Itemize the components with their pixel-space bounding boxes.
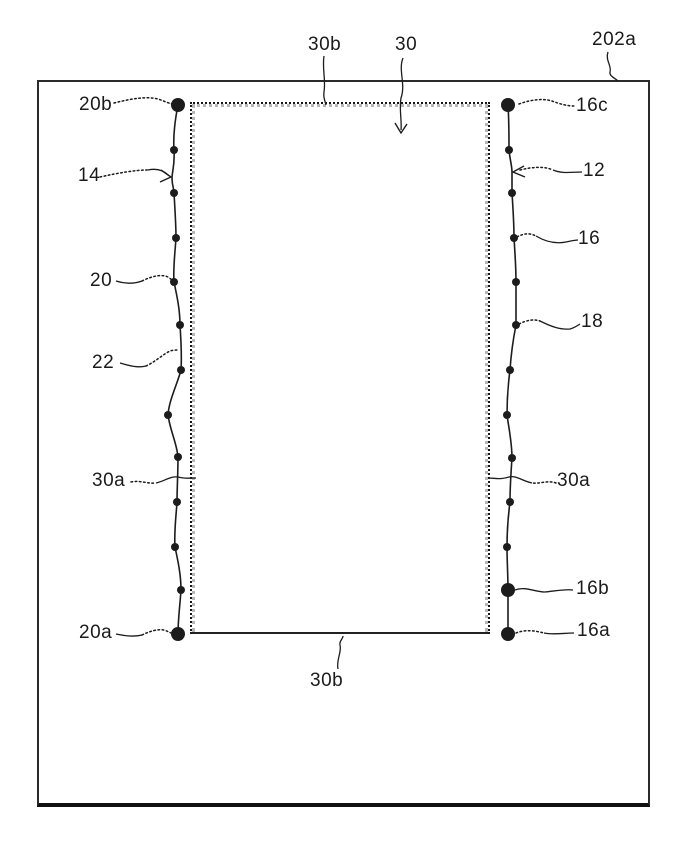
leader-30b-top bbox=[323, 56, 326, 105]
electrode-dot bbox=[177, 586, 185, 594]
leader-22-dotted bbox=[146, 350, 179, 366]
label-16a: 16a bbox=[577, 621, 610, 641]
electrode-dot bbox=[164, 411, 172, 419]
electrode-dot bbox=[172, 234, 180, 242]
electrode-dot bbox=[501, 98, 515, 112]
label-14: 14 bbox=[78, 166, 100, 186]
label-22: 22 bbox=[92, 353, 114, 373]
leader-12-dotted bbox=[520, 167, 553, 170]
label-12: 12 bbox=[583, 161, 605, 181]
electrode-dot bbox=[510, 234, 518, 242]
leader-16a-solid bbox=[544, 633, 574, 634]
leader-30a-left-dotted bbox=[131, 481, 156, 483]
electrode-dot bbox=[170, 146, 178, 154]
leader-12-solid bbox=[553, 170, 582, 173]
leader-16b bbox=[515, 589, 573, 592]
electrode-dots bbox=[164, 98, 520, 641]
leader-16-solid bbox=[536, 236, 578, 243]
leader-20-dotted bbox=[142, 276, 175, 282]
label-18: 18 bbox=[581, 312, 603, 332]
electrode-dot bbox=[173, 498, 181, 506]
electrode-dot bbox=[174, 453, 182, 461]
leader-16-dotted bbox=[517, 234, 536, 237]
electrode-dot bbox=[505, 146, 513, 154]
leader-20a-solid bbox=[116, 634, 142, 636]
leader-20b bbox=[114, 98, 172, 104]
electrode-dot bbox=[171, 98, 185, 112]
electrode-dot bbox=[512, 278, 520, 286]
leader-16a-dotted bbox=[516, 631, 544, 633]
leader-30 bbox=[400, 58, 403, 130]
label-20a: 20a bbox=[79, 623, 112, 643]
leader-20-solid bbox=[116, 281, 142, 283]
leader-20a-dotted bbox=[142, 630, 171, 635]
label-30b-bottom: 30b bbox=[310, 671, 343, 691]
leader-16c bbox=[519, 100, 574, 106]
label-16b: 16b bbox=[576, 579, 609, 599]
electrode-dot bbox=[503, 411, 511, 419]
label-30a-left: 30a bbox=[92, 471, 125, 491]
patent-figure: 20b 14 20 22 30a 20a 16c 12 16 18 30a 16… bbox=[0, 0, 688, 858]
electrode-dot bbox=[501, 583, 515, 597]
electrode-dot bbox=[508, 189, 516, 197]
label-30b-top: 30b bbox=[308, 35, 341, 55]
leader-202a bbox=[607, 52, 618, 81]
label-20: 20 bbox=[90, 271, 112, 291]
label-20b: 20b bbox=[79, 95, 112, 115]
electrode-dot bbox=[171, 627, 185, 641]
electrode-dot bbox=[506, 366, 514, 374]
label-16: 16 bbox=[578, 229, 600, 249]
electrode-dot bbox=[177, 366, 185, 374]
label-202a: 202a bbox=[592, 30, 636, 50]
leader-18-solid bbox=[540, 321, 580, 329]
arrowhead-12 bbox=[513, 166, 525, 177]
leader-18-dotted bbox=[519, 320, 540, 324]
electrode-dot bbox=[171, 543, 179, 551]
electrode-dot bbox=[506, 498, 514, 506]
leader-22-solid bbox=[120, 363, 146, 367]
label-30a-right: 30a bbox=[557, 471, 590, 491]
figure-linework bbox=[0, 0, 688, 858]
label-30: 30 bbox=[395, 35, 417, 55]
electrode-dot bbox=[503, 543, 511, 551]
leader-30a-left-solid bbox=[156, 477, 196, 483]
leader-14-dotted bbox=[100, 170, 148, 177]
electrode-dot bbox=[501, 627, 515, 641]
electrode-dot bbox=[512, 321, 520, 329]
label-16c: 16c bbox=[576, 96, 608, 116]
electrode-dot bbox=[170, 189, 178, 197]
leader-30b-bottom bbox=[338, 636, 343, 669]
electrode-dot bbox=[508, 454, 516, 462]
arrowhead-14 bbox=[160, 170, 171, 182]
electrode-dot bbox=[176, 321, 184, 329]
leader-30a-right-dotted bbox=[532, 482, 556, 483]
